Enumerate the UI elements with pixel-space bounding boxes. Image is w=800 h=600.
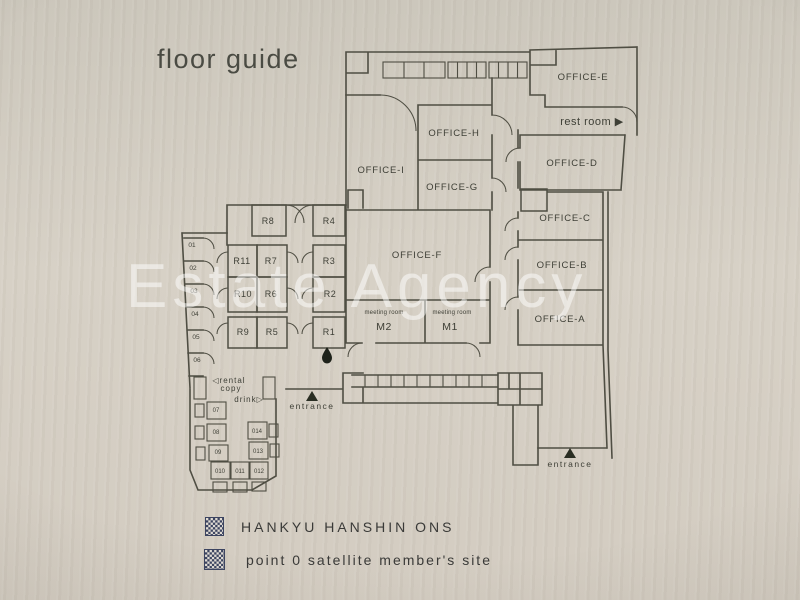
qr-code-hankyu-icon — [205, 517, 224, 536]
rest-room-label: rest room ▶ — [560, 116, 624, 128]
locker-cabinets — [383, 62, 527, 78]
entrance-main-label: entrance — [289, 401, 334, 411]
booth-04-label: 04 — [191, 311, 199, 318]
room-r1-label: R1 — [323, 327, 336, 337]
office-e-label: OFFICE-E — [558, 72, 609, 83]
office-b-label: OFFICE-B — [537, 260, 588, 271]
office-i-label: OFFICE-I — [357, 165, 404, 176]
booth-05-label: 05 — [192, 334, 200, 341]
office-c-label: OFFICE-C — [539, 213, 590, 224]
desk-013-label: 013 — [253, 449, 264, 455]
desk-07-label: 07 — [213, 408, 220, 414]
office-g-label: OFFICE-G — [426, 182, 478, 193]
room-r4-label: R4 — [323, 216, 336, 226]
room-r2-label: R2 — [324, 289, 337, 299]
desk-09-label: 09 — [215, 450, 222, 456]
drink-label: drink▷ — [234, 395, 264, 404]
room-r6-label: R6 — [265, 289, 278, 299]
desk-08-label: 08 — [213, 430, 220, 436]
floor-guide-sign: floor guide — [0, 0, 800, 600]
room-r11-label: R11 — [233, 256, 250, 266]
qr2-label: point 0 satellite member's site — [246, 552, 492, 568]
meeting-room-m1-label: M1 — [442, 321, 458, 333]
office-a-label: OFFICE-A — [535, 314, 586, 325]
room-r3-label: R3 — [323, 256, 336, 266]
floor-plan: OFFICE-E OFFICE-H OFFICE-I OFFICE-G OFFI… — [0, 0, 800, 600]
room-r7-label: R7 — [265, 256, 278, 266]
qr1-label: HANKYU HANSHIN ONS — [241, 519, 454, 535]
desk-014-label: 014 — [252, 429, 263, 435]
copy-label: copy — [221, 384, 242, 393]
room-labels: OFFICE-E OFFICE-H OFFICE-I OFFICE-G OFFI… — [188, 72, 623, 475]
room-r9-label: R9 — [237, 327, 250, 337]
desk-012-label: 012 — [254, 469, 265, 475]
desk-011-label: 011 — [235, 469, 245, 475]
meeting-room-m1-caption: meeting room — [432, 310, 471, 316]
room-r5-label: R5 — [266, 327, 279, 337]
entrance-arrow-icon — [306, 391, 318, 401]
room-r8-label: R8 — [262, 216, 275, 226]
booth-06-label: 06 — [193, 357, 201, 364]
booth-02-label: 02 — [189, 265, 197, 272]
office-f-label: OFFICE-F — [392, 250, 442, 261]
meeting-room-m2-label: M2 — [376, 321, 392, 333]
qr-code-point0-icon — [204, 549, 225, 570]
room-r10-label: R10 — [234, 289, 252, 299]
entrance-side-label: entrance — [547, 459, 592, 469]
entrance-side-arrow-icon — [564, 448, 576, 458]
office-h-label: OFFICE-H — [428, 128, 479, 139]
water-drop-icon — [322, 347, 332, 363]
office-d-label: OFFICE-D — [546, 158, 597, 169]
meeting-room-m2-caption: meeting room — [364, 310, 403, 316]
booth-01-label: 01 — [188, 242, 196, 249]
booth-03-label: 03 — [190, 288, 198, 295]
desk-010-label: 010 — [215, 469, 226, 475]
